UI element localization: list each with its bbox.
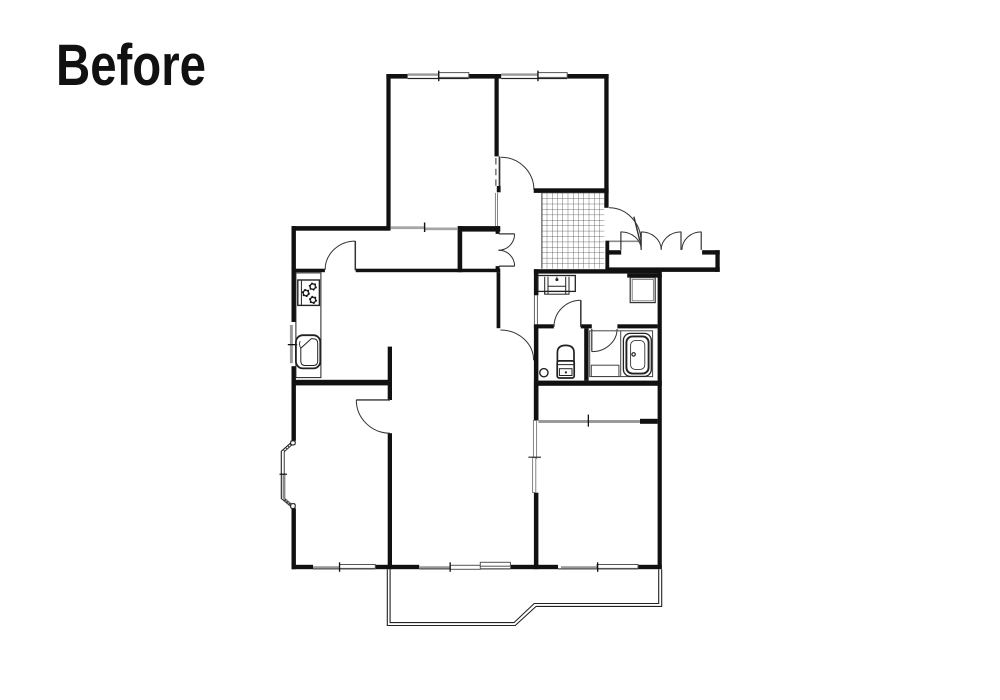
svg-text:Before: Before <box>56 33 206 98</box>
